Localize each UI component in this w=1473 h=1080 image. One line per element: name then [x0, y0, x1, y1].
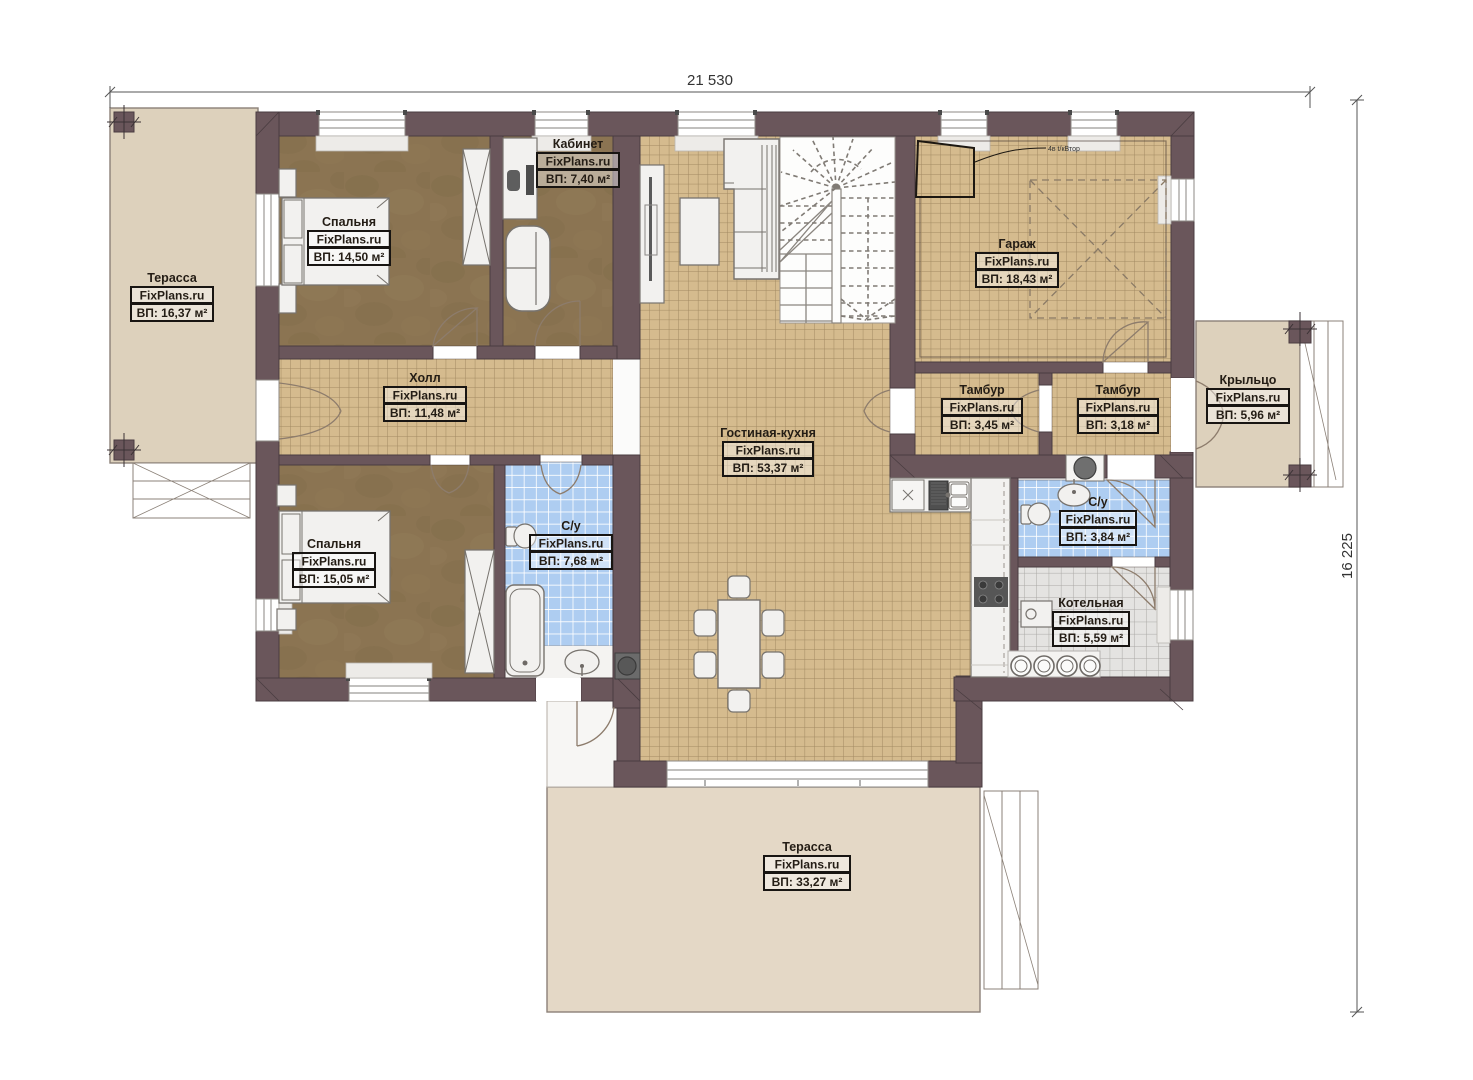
- svg-text:ВП: 7,68 м²: ВП: 7,68 м²: [539, 554, 603, 568]
- svg-text:ВП: 53,37 м²: ВП: 53,37 м²: [733, 461, 804, 475]
- svg-text:4в t/кВтор: 4в t/кВтор: [1048, 146, 1080, 153]
- svg-text:ВП: 18,43 м²: ВП: 18,43 м²: [982, 272, 1053, 286]
- svg-text:21 530: 21 530: [687, 72, 733, 89]
- svg-text:Крыльцо: Крыльцо: [1220, 373, 1277, 387]
- svg-text:Тамбур: Тамбур: [959, 383, 1005, 397]
- svg-text:FixPlans.ru: FixPlans.ru: [1086, 401, 1151, 415]
- svg-text:FixPlans.ru: FixPlans.ru: [950, 401, 1015, 415]
- svg-text:Спальня: Спальня: [322, 215, 376, 229]
- svg-text:Котельная: Котельная: [1058, 596, 1123, 610]
- svg-text:ВП: 3,18 м²: ВП: 3,18 м²: [1086, 418, 1150, 432]
- svg-text:Гостиная-кухня: Гостиная-кухня: [720, 426, 816, 440]
- svg-text:FixPlans.ru: FixPlans.ru: [539, 537, 604, 551]
- svg-text:FixPlans.ru: FixPlans.ru: [736, 444, 801, 458]
- svg-text:FixPlans.ru: FixPlans.ru: [302, 555, 367, 569]
- svg-text:FixPlans.ru: FixPlans.ru: [1216, 391, 1281, 405]
- svg-text:ВП: 15,05 м²: ВП: 15,05 м²: [299, 572, 370, 586]
- svg-text:ВП: 3,84 м²: ВП: 3,84 м²: [1066, 530, 1130, 544]
- svg-text:FixPlans.ru: FixPlans.ru: [775, 858, 840, 872]
- svg-text:FixPlans.ru: FixPlans.ru: [1059, 614, 1124, 628]
- svg-text:ВП: 7,40 м²: ВП: 7,40 м²: [546, 172, 610, 186]
- svg-text:Спальня: Спальня: [307, 537, 361, 551]
- svg-text:FixPlans.ru: FixPlans.ru: [1066, 513, 1131, 527]
- svg-text:ВП: 11,48 м²: ВП: 11,48 м²: [390, 406, 460, 420]
- svg-text:ВП: 3,45 м²: ВП: 3,45 м²: [950, 418, 1014, 432]
- svg-text:FixPlans.ru: FixPlans.ru: [985, 255, 1050, 269]
- svg-text:ВП: 5,96 м²: ВП: 5,96 м²: [1216, 408, 1280, 422]
- svg-text:Кабинет: Кабинет: [553, 137, 604, 151]
- svg-text:16 225: 16 225: [1339, 533, 1356, 579]
- svg-text:ВП: 5,59 м²: ВП: 5,59 м²: [1059, 631, 1123, 645]
- svg-text:С/у: С/у: [561, 519, 581, 533]
- svg-text:ВП: 16,37 м²: ВП: 16,37 м²: [137, 306, 208, 320]
- svg-text:FixPlans.ru: FixPlans.ru: [317, 233, 382, 247]
- svg-text:Гараж: Гараж: [998, 237, 1035, 251]
- svg-text:С/у: С/у: [1088, 495, 1108, 509]
- svg-text:Холл: Холл: [409, 371, 440, 385]
- svg-text:FixPlans.ru: FixPlans.ru: [140, 289, 205, 303]
- svg-text:ВП: 14,50 м²: ВП: 14,50 м²: [314, 250, 385, 264]
- svg-text:Тамбур: Тамбур: [1095, 383, 1141, 397]
- svg-text:FixPlans.ru: FixPlans.ru: [546, 155, 611, 169]
- svg-text:FixPlans.ru: FixPlans.ru: [393, 389, 458, 403]
- svg-text:Терасса: Терасса: [147, 271, 198, 285]
- svg-text:ВП: 33,27 м²: ВП: 33,27 м²: [772, 875, 843, 889]
- svg-text:Терасса: Терасса: [782, 840, 833, 854]
